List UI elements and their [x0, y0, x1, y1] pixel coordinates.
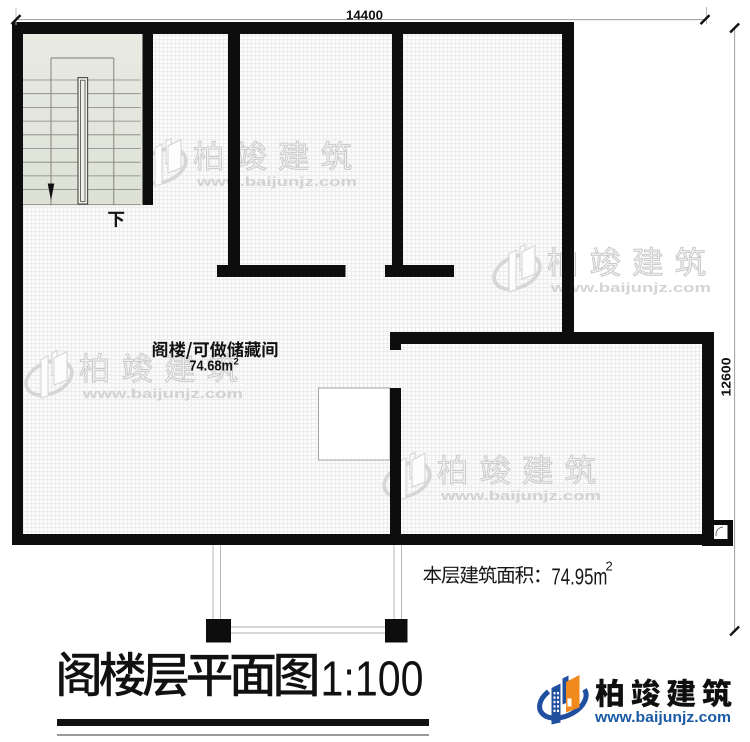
svg-text:2: 2 — [606, 559, 613, 574]
svg-text:1:100: 1:100 — [321, 653, 424, 707]
svg-text:www.baijunjz.com: www.baijunjz.com — [594, 709, 731, 726]
svg-text:74.68m: 74.68m — [189, 358, 233, 375]
svg-text:14400: 14400 — [346, 7, 383, 22]
svg-text:12600: 12600 — [719, 358, 734, 397]
svg-text:2: 2 — [234, 357, 239, 368]
svg-text:74.95m: 74.95m — [551, 564, 607, 590]
